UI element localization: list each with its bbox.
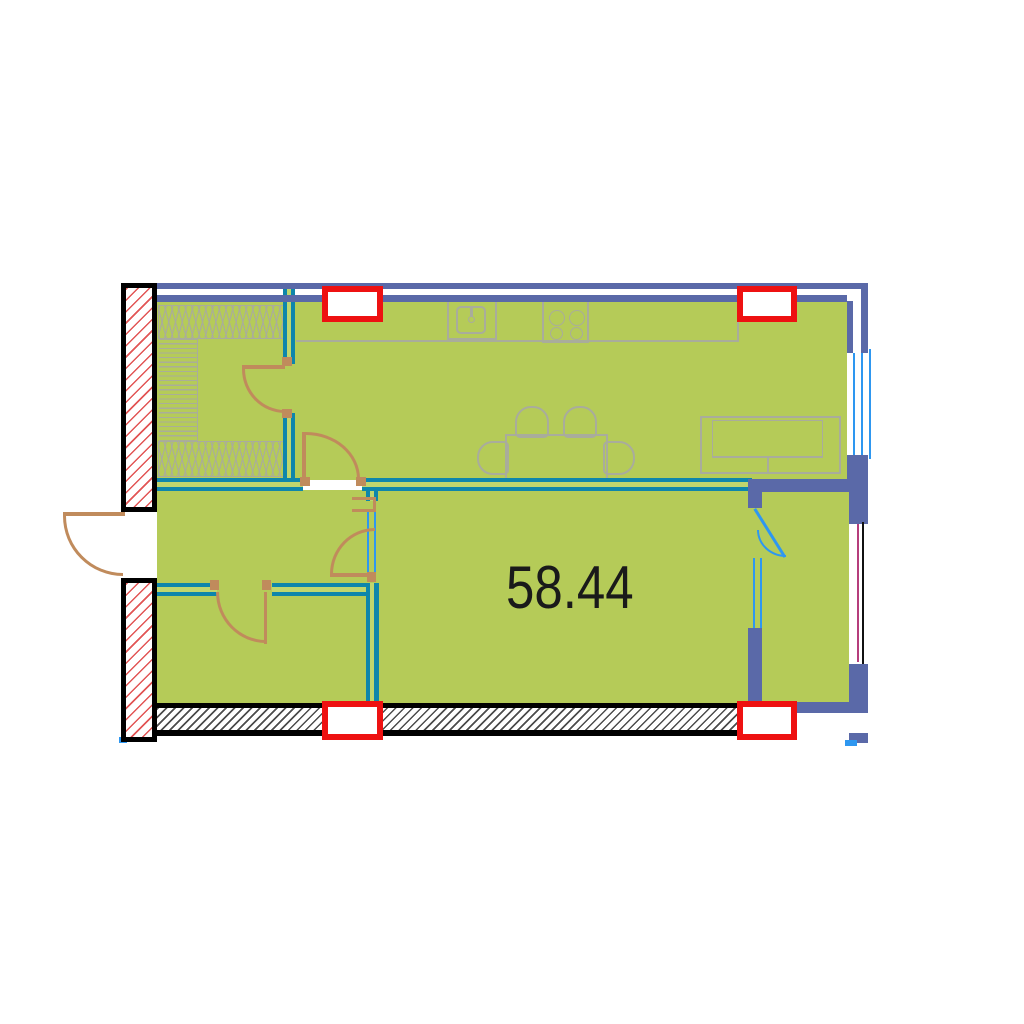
wall-bath-east [366,583,379,704]
utility-tick-bottom-right [845,740,857,746]
column-top-left [322,286,383,322]
room1-door-post-top [282,357,292,366]
chair-left [477,441,509,475]
right-wall-inner-upper [847,301,853,353]
sofa-cushion-divider [767,456,769,472]
right-wall-outer-upper [861,283,868,353]
wall-living-south [362,478,752,491]
entrance-door-swing-icon [63,516,123,576]
bottom-wall-hatch [157,708,797,730]
wall-room1-lower [283,413,295,479]
burner-top-right [569,310,585,326]
burner-top-left [549,310,565,326]
hall-door-post-right [356,477,366,486]
burner-bottom-right [570,327,583,340]
kitchen-counter-line [296,340,739,342]
bottom-wall [157,703,797,736]
balcony-fixed-glazing [753,558,762,628]
right-wall-under-window [847,455,868,480]
chair-right [603,441,635,475]
dining-table-icon [505,434,608,481]
right-wall-mid-block [849,492,868,524]
chair-top-1 [515,406,549,438]
floor-plan-canvas: 58.44 [0,0,1024,1024]
bath-door-post-left [210,580,219,590]
column-bottom-left [322,701,383,740]
hall-door-post-left [300,477,310,486]
left-wall-upper-hatch [126,288,152,507]
wall-hall-north-left [157,478,303,491]
left-wall-upper [121,283,157,512]
wardrobe-hatch-top [158,305,284,339]
balcony-partition-stub-top [748,492,762,508]
sofa-backrest [712,420,823,458]
living-window-pane-1 [853,353,855,455]
room1-door-post-bottom [282,409,292,418]
wall-bath-north-left [157,583,217,596]
living-window-outer-line [869,349,871,459]
bottom-wall-right-slate [797,702,868,713]
chair-top-2 [563,406,597,438]
faucet-knob [468,316,475,323]
burner-bottom-left [550,327,563,340]
wardrobe-hatch-bottom [158,441,284,477]
bath-door-post-right [262,580,271,590]
balcony-north-wall [748,479,868,492]
left-wall-lower [121,578,157,742]
left-wall-lower-hatch [126,583,152,737]
balcony-window-glazing [857,524,859,662]
floor-balcony [762,492,849,702]
area-label: 58.44 [506,558,634,618]
column-top-right [737,286,797,322]
wardrobe-hatch-left [159,339,198,441]
wall-bath-north-right [272,583,379,596]
duct-notch-bottom [352,509,376,512]
balcony-window-frame [862,522,864,664]
living-window-pane-2 [861,353,863,455]
column-bottom-right [737,701,797,740]
balcony-partition-stub-bottom [748,628,762,704]
